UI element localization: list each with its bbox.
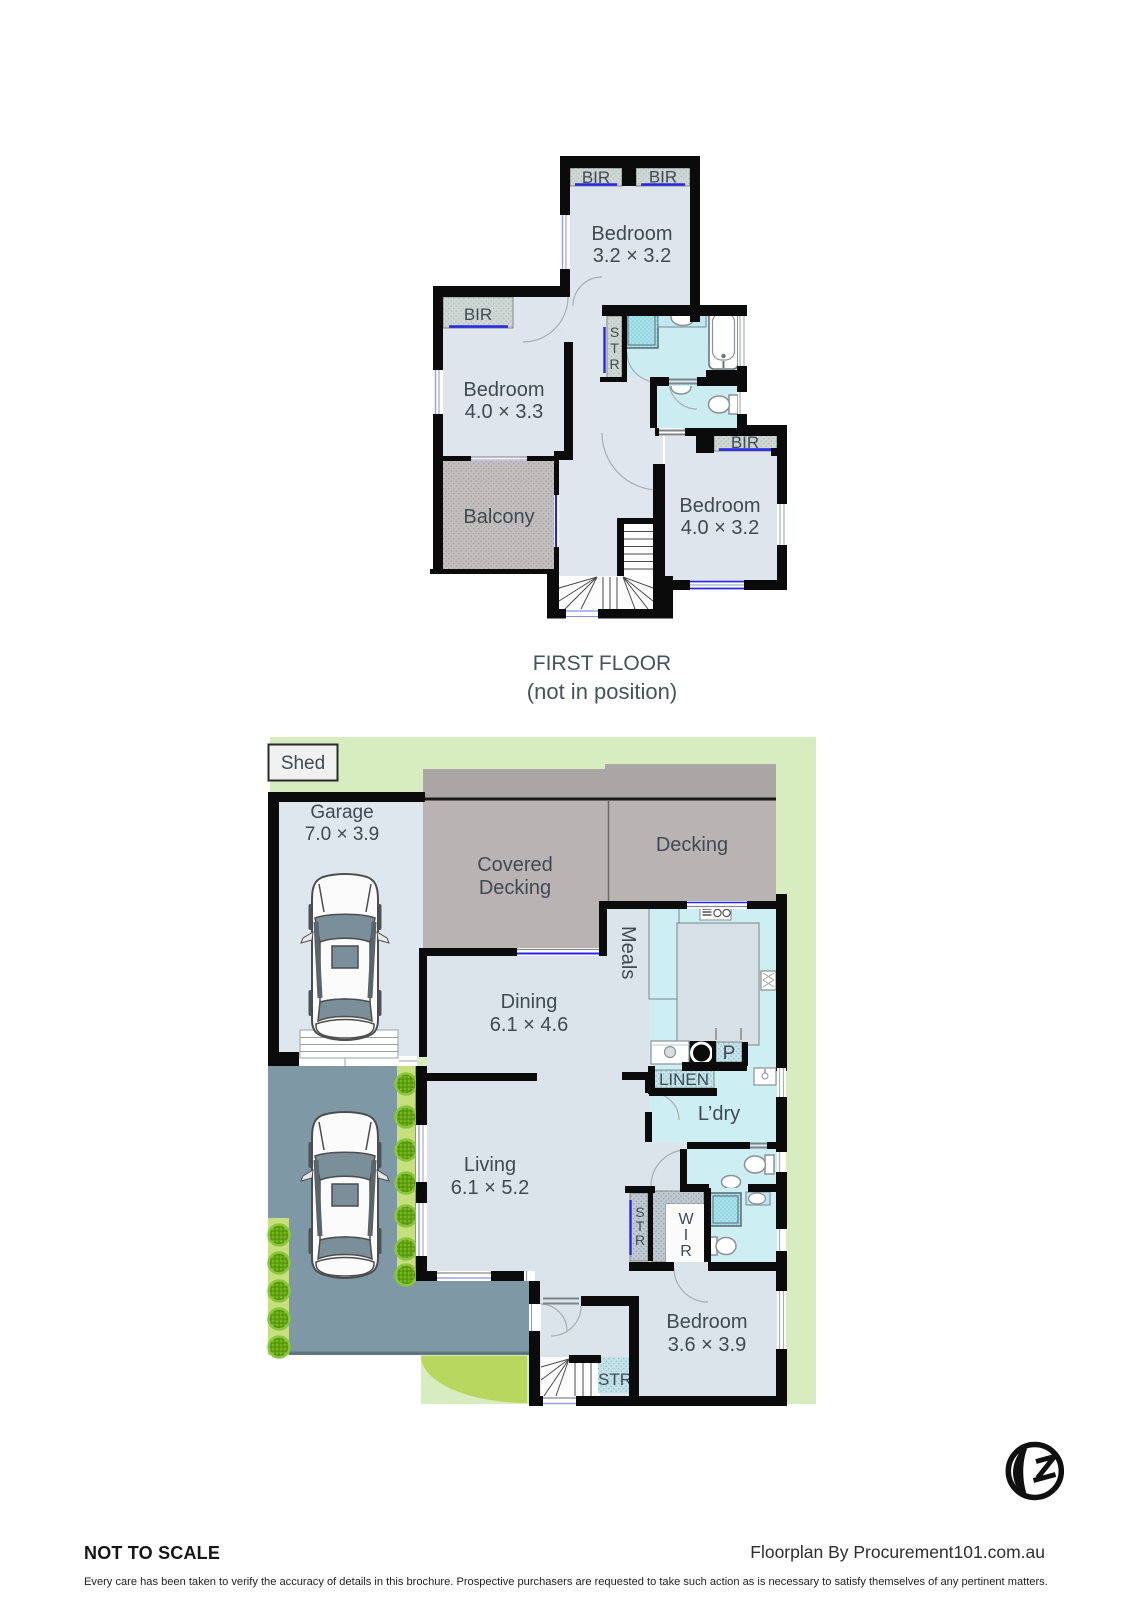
svg-text:6.1 × 5.2: 6.1 × 5.2: [451, 1177, 529, 1199]
svg-text:Balcony: Balcony: [463, 506, 534, 528]
svg-text:Floorplan By Procurement101.co: Floorplan By Procurement101.com.au: [750, 1542, 1045, 1562]
svg-text:Living: Living: [464, 1154, 516, 1176]
svg-text:Shed: Shed: [281, 753, 325, 774]
svg-text:BIR: BIR: [582, 168, 610, 187]
svg-text:W: W: [678, 1211, 694, 1228]
svg-text:BIR: BIR: [464, 305, 492, 324]
svg-text:Meals: Meals: [617, 926, 639, 979]
svg-text:R: R: [609, 356, 619, 372]
svg-text:BIR: BIR: [731, 433, 759, 452]
svg-text:P: P: [723, 1043, 736, 1064]
svg-text:Decking: Decking: [479, 877, 551, 899]
svg-text:(not in position): (not in position): [527, 679, 677, 704]
svg-text:Bedroom: Bedroom: [591, 223, 672, 245]
svg-text:Bedroom: Bedroom: [679, 495, 760, 517]
svg-text:I: I: [684, 1227, 688, 1244]
svg-text:Covered: Covered: [477, 854, 553, 876]
svg-text:STR: STR: [598, 1370, 632, 1389]
svg-text:6.1 × 4.6: 6.1 × 4.6: [490, 1014, 568, 1036]
svg-text:S: S: [610, 324, 619, 340]
svg-text:FIRST FLOOR: FIRST FLOOR: [533, 652, 671, 675]
svg-text:L’dry: L’dry: [698, 1103, 740, 1125]
svg-text:Bedroom: Bedroom: [463, 379, 544, 401]
svg-text:7.0 × 3.9: 7.0 × 3.9: [305, 824, 379, 845]
svg-text:4.0 × 3.3: 4.0 × 3.3: [465, 401, 543, 423]
svg-text:BIR: BIR: [649, 168, 677, 187]
svg-text:NOT TO SCALE: NOT TO SCALE: [84, 1543, 220, 1563]
svg-text:Garage: Garage: [310, 802, 373, 823]
svg-text:Bedroom: Bedroom: [666, 1311, 747, 1333]
svg-text:3.2 × 3.2: 3.2 × 3.2: [593, 245, 671, 267]
svg-text:3.6 × 3.9: 3.6 × 3.9: [668, 1334, 746, 1356]
svg-text:T: T: [610, 340, 619, 356]
svg-text:LINEN: LINEN: [659, 1070, 709, 1089]
svg-text:Dining: Dining: [501, 991, 558, 1013]
svg-text:4.0 × 3.2: 4.0 × 3.2: [681, 517, 759, 539]
svg-text:Decking: Decking: [656, 834, 728, 856]
svg-text:R: R: [635, 1232, 645, 1248]
svg-text:R: R: [680, 1243, 692, 1260]
svg-text:Every care has been taken to v: Every care has been taken to verify the …: [84, 1576, 1048, 1588]
